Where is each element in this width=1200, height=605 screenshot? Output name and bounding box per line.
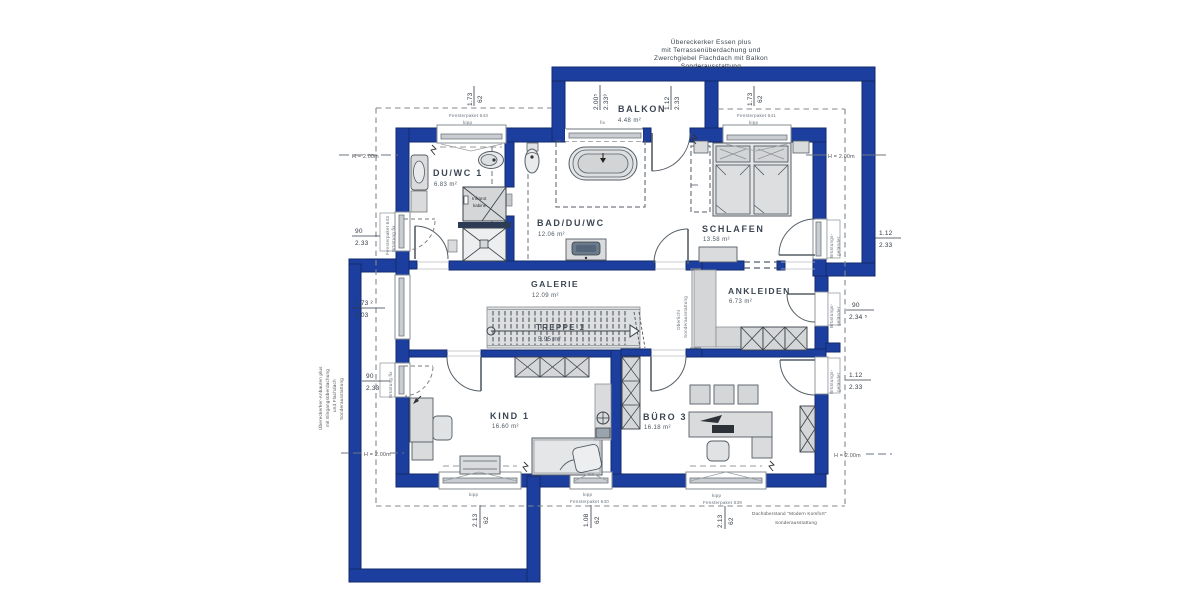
svg-text:H = 2.00m: H = 2.00m [834, 453, 861, 459]
svg-text:BÜRO 3: BÜRO 3 [643, 412, 687, 422]
svg-text:1.12: 1.12 [664, 96, 671, 110]
svg-text:Brüstungs-: Brüstungs- [829, 304, 834, 328]
svg-text:Oberlicht: Oberlicht [676, 309, 681, 330]
svg-text:12.06 m²: 12.06 m² [538, 232, 565, 238]
svg-text:2.33³: 2.33³ [603, 94, 610, 110]
svg-text:kabine: kabine [473, 203, 487, 208]
svg-text:2.03: 2.03 [355, 312, 369, 319]
svg-text:1.12: 1.12 [849, 372, 863, 379]
svg-text:1.73: 1.73 [467, 92, 474, 106]
svg-text:Fensterpaket 643: Fensterpaket 643 [449, 113, 488, 118]
svg-text:2.13: 2.13 [472, 513, 479, 527]
svg-text:Sonderausstattung: Sonderausstattung [683, 296, 688, 338]
svg-text:kipp: kipp [583, 492, 592, 497]
svg-text:kipp: kipp [749, 120, 758, 125]
svg-text:2.33: 2.33 [849, 384, 863, 391]
svg-text:12.09 m²: 12.09 m² [532, 293, 559, 299]
svg-text:62: 62 [483, 516, 490, 524]
svg-text:Übereckerker Essen plus: Übereckerker Essen plus [671, 38, 752, 46]
svg-text:Fensterpaket 640: Fensterpaket 640 [570, 499, 609, 504]
svg-text:62: 62 [594, 516, 601, 524]
svg-text:BALKON: BALKON [618, 104, 666, 114]
svg-text:2.33: 2.33 [674, 96, 681, 110]
svg-text:Brüstungs-: Brüstungs- [829, 234, 834, 258]
svg-text:kipp: kipp [463, 120, 472, 125]
svg-text:62: 62 [757, 95, 764, 103]
svg-text:90: 90 [355, 228, 363, 235]
svg-text:6.83 m²: 6.83 m² [434, 182, 457, 188]
svg-text:Brüstung fix: Brüstung fix [388, 371, 393, 398]
svg-text:13.58 m²: 13.58 m² [703, 237, 730, 243]
svg-text:1.73: 1.73 [747, 92, 754, 106]
svg-text:GALERIE: GALERIE [531, 279, 579, 289]
svg-text:fix: fix [600, 120, 606, 125]
svg-text:Infrarot: Infrarot [472, 196, 487, 201]
svg-text:H = 2.00m: H = 2.00m [364, 452, 391, 458]
svg-text:kipp: kipp [469, 492, 478, 497]
svg-text:62: 62 [728, 517, 735, 525]
svg-text:Sonderausstattung: Sonderausstattung [339, 378, 344, 420]
svg-text:2.33: 2.33 [355, 240, 369, 247]
svg-text:ANKLEIDEN: ANKLEIDEN [728, 286, 791, 296]
svg-text:6.73 m²: 6.73 m² [729, 299, 752, 305]
svg-text:1.12: 1.12 [879, 230, 893, 237]
svg-text:1.08: 1.08 [583, 513, 590, 527]
svg-text:Fensterpaket 639: Fensterpaket 639 [703, 500, 742, 505]
svg-text:H = 2.00m: H = 2.00m [352, 154, 379, 160]
svg-text:90: 90 [852, 302, 860, 309]
svg-text:1.73 ²: 1.73 ² [355, 300, 373, 307]
svg-text:Fensterpaket 643: Fensterpaket 643 [385, 216, 390, 255]
svg-text:2.34 ⁵: 2.34 ⁵ [849, 314, 867, 321]
svg-text:16.60 m²: 16.60 m² [492, 424, 519, 430]
svg-text:KIND 1: KIND 1 [490, 411, 530, 421]
svg-text:2.13: 2.13 [717, 514, 724, 528]
svg-text:kipp: kipp [712, 493, 721, 498]
svg-text:2.00⁵: 2.00⁵ [593, 94, 600, 110]
svg-text:mit Eingangsüberdachung: mit Eingangsüberdachung [325, 369, 330, 427]
svg-text:BAD/DU/WC: BAD/DU/WC [537, 218, 605, 228]
svg-text:mit Terrassenüberdachung und: mit Terrassenüberdachung und [661, 47, 760, 54]
svg-text:DU/WC 1: DU/WC 1 [433, 168, 483, 178]
svg-text:4.48 m²: 4.48 m² [618, 118, 641, 124]
svg-text:H = 2.00m: H = 2.00m [828, 154, 855, 160]
svg-text:2.33: 2.33 [879, 242, 893, 249]
svg-text:Fensterpaket 641: Fensterpaket 641 [737, 113, 776, 118]
svg-text:2.33: 2.33 [366, 385, 380, 392]
svg-text:Sonderausstattung: Sonderausstattung [775, 520, 817, 525]
svg-text:geländer: geländer [836, 236, 841, 256]
svg-text:62: 62 [477, 95, 484, 103]
svg-text:geländer: geländer [836, 306, 841, 326]
svg-text:Übereckerker-Anbauten plus: Übereckerker-Anbauten plus [317, 366, 323, 430]
svg-text:16.18 m²: 16.18 m² [644, 425, 671, 431]
svg-text:5.95 m²: 5.95 m² [538, 337, 561, 343]
svg-text:Brüstung fix: Brüstung fix [391, 225, 396, 252]
svg-text:Sonderausstattung: Sonderausstattung [681, 63, 741, 70]
svg-text:90: 90 [366, 373, 374, 380]
svg-text:Dachüberstand "Modern Komfort": Dachüberstand "Modern Komfort" [752, 511, 827, 516]
svg-text:Brüstungs-: Brüstungs- [829, 370, 834, 394]
svg-text:und Flachdach: und Flachdach [332, 379, 337, 412]
svg-text:geländer: geländer [836, 372, 841, 392]
svg-text:TREPPE 1: TREPPE 1 [536, 323, 585, 332]
svg-text:Zwerchgiebel Flachdach mit Bal: Zwerchgiebel Flachdach mit Balkon [654, 55, 768, 62]
svg-text:SCHLAFEN: SCHLAFEN [702, 224, 765, 234]
